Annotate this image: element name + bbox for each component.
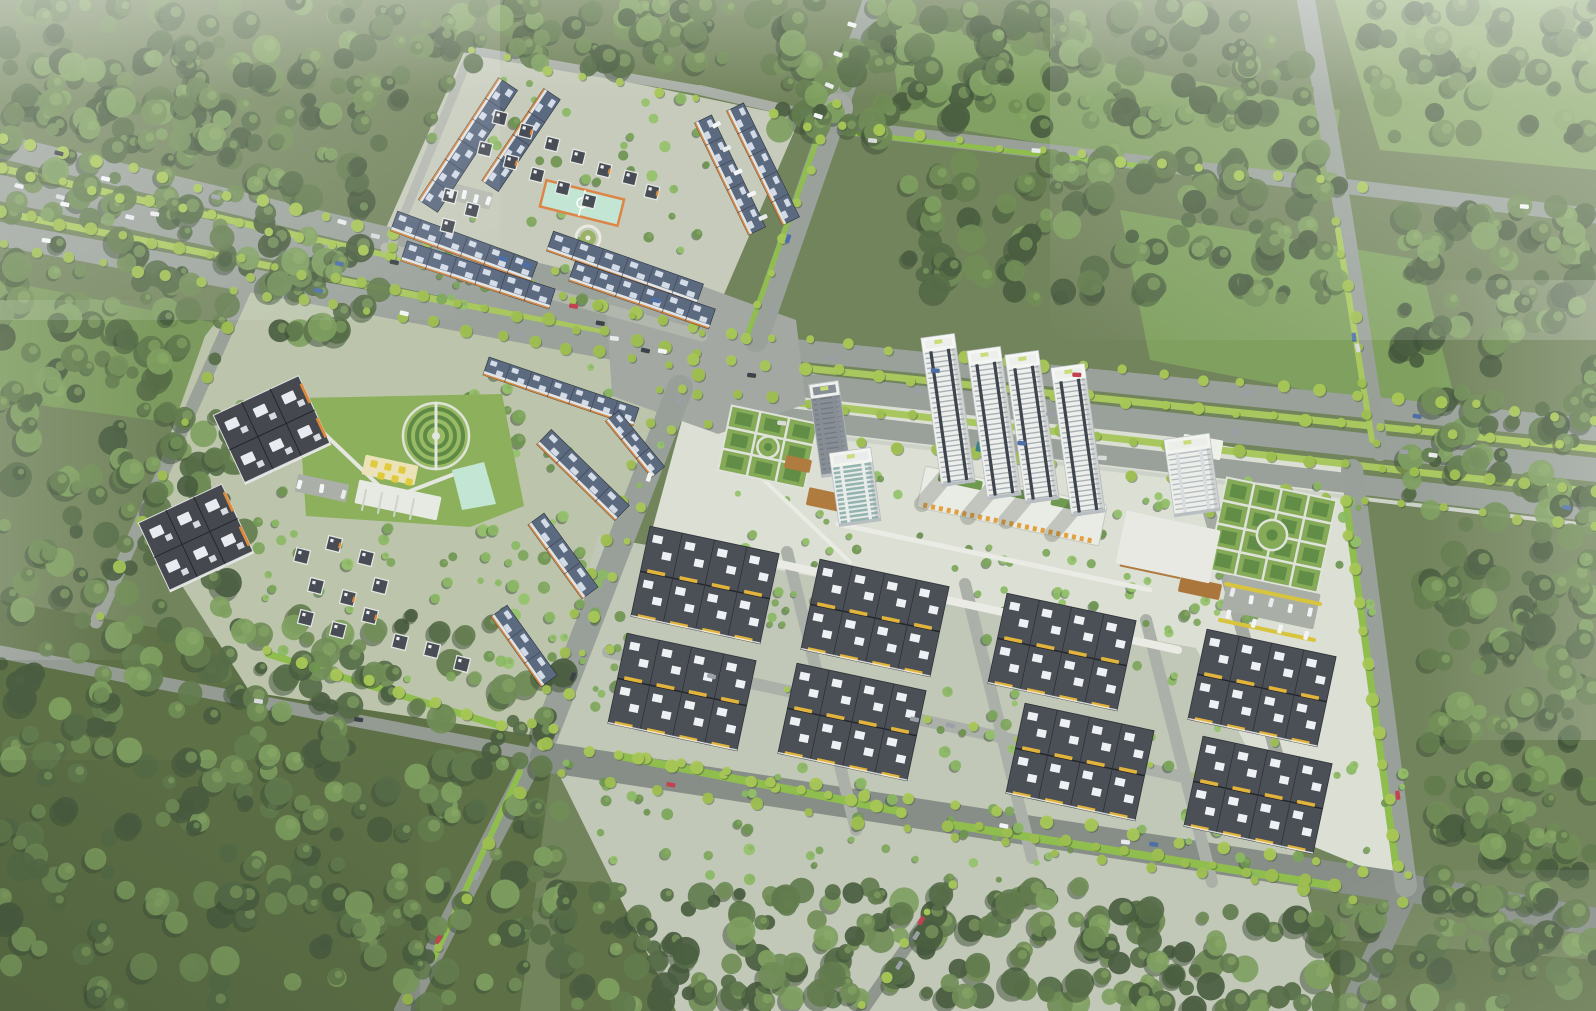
villa xyxy=(544,136,560,152)
villa xyxy=(298,610,315,627)
checker-tile xyxy=(391,475,399,483)
villa xyxy=(644,184,660,200)
villa xyxy=(596,162,612,178)
villa xyxy=(454,656,471,673)
shadow-corner xyxy=(0,760,420,1011)
villa xyxy=(622,170,638,186)
villa xyxy=(294,548,311,565)
master-plan-aerial-view xyxy=(0,0,1596,1011)
checker-tile xyxy=(377,472,385,480)
villa xyxy=(503,154,519,170)
villa xyxy=(518,123,534,139)
villa xyxy=(372,578,389,595)
villa xyxy=(330,622,347,639)
villa xyxy=(581,193,597,209)
villa xyxy=(358,550,375,567)
checker-tile xyxy=(405,478,413,486)
villa xyxy=(340,590,357,607)
fog xyxy=(1420,280,1596,740)
fog xyxy=(0,300,160,660)
villa xyxy=(308,578,325,595)
villa xyxy=(326,536,343,553)
villa xyxy=(392,634,409,651)
fog xyxy=(1340,870,1596,1011)
villa xyxy=(424,642,441,659)
villa xyxy=(362,608,379,625)
villa xyxy=(570,149,586,165)
garden-circle-dot xyxy=(586,236,591,241)
villa xyxy=(555,180,571,196)
aerial-render-viewport xyxy=(0,0,1596,1011)
checker-tile xyxy=(384,463,392,471)
checker-tile xyxy=(370,460,378,468)
villa xyxy=(529,167,545,183)
checker-tile xyxy=(398,466,406,474)
